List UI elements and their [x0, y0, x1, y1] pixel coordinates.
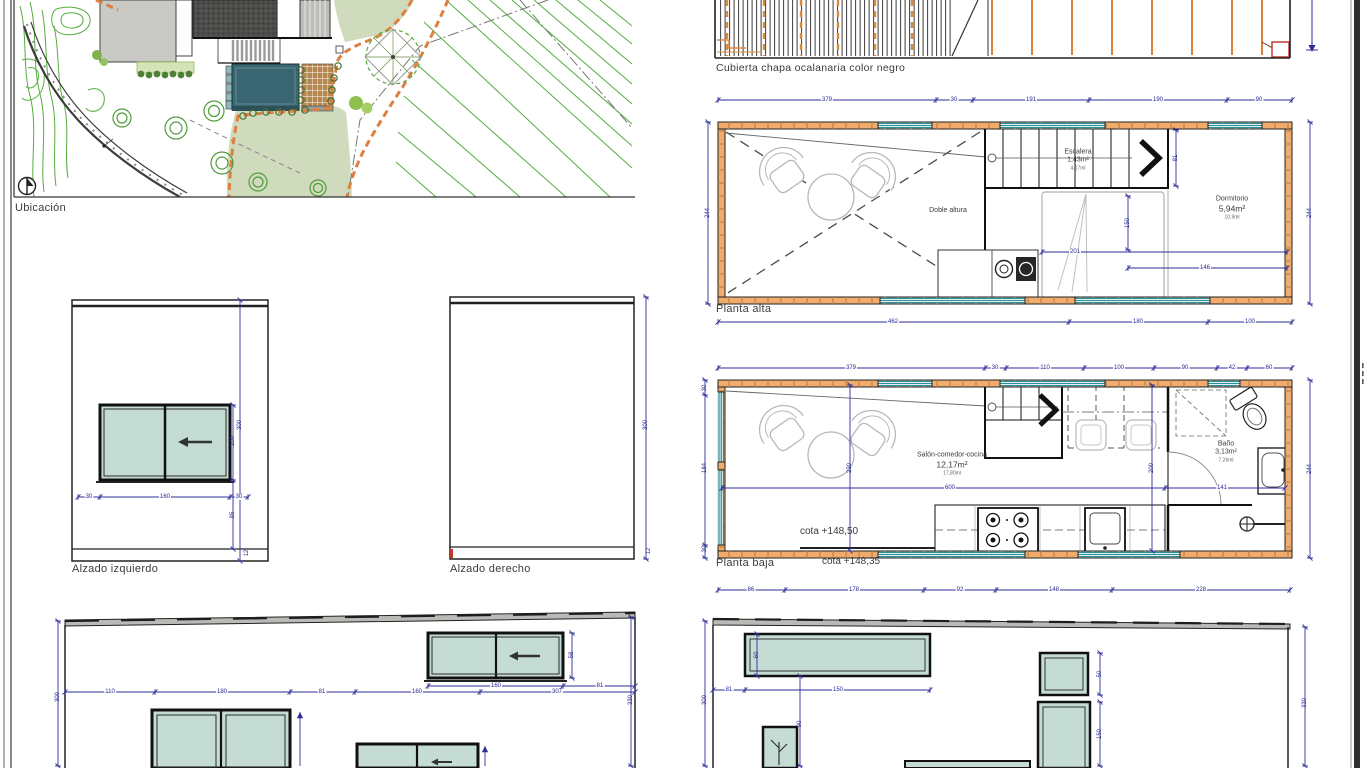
room-label-dormitorio: Dormitorio 5,94m² 10,9ml — [1216, 196, 1248, 221]
caption-planta-baja: Planta baja — [716, 557, 774, 569]
caption-planta-alta: Planta alta — [716, 303, 771, 315]
caption-ubicacion: Ubicación — [15, 202, 66, 214]
dim-label: 160 — [490, 683, 502, 689]
dim-label: 81 — [318, 689, 327, 695]
red-corner-marker — [1272, 42, 1289, 57]
round-table — [808, 174, 854, 220]
dim-label: 30 — [702, 384, 708, 393]
stair-lower — [985, 385, 1062, 458]
room-label-doble-altura: Doble altura — [929, 207, 967, 215]
dim-label: 191 — [1025, 97, 1037, 103]
dim-label: 244 — [1307, 207, 1313, 219]
dim-label: 81 — [596, 683, 605, 689]
shower-valve — [1240, 517, 1285, 531]
bed — [1042, 192, 1164, 298]
dim-label: 100 — [1113, 365, 1125, 371]
dim-label: 148 — [1048, 587, 1060, 593]
dim-label: 81 — [1173, 154, 1179, 163]
dim-label: 300 — [643, 419, 649, 431]
dim-label: 244 — [705, 207, 711, 219]
dim-label: 92 — [956, 587, 965, 593]
alzado-derecho-drawing — [450, 297, 634, 559]
kitchen — [935, 505, 1165, 553]
dim-label: 90 — [797, 720, 803, 729]
room-label-escalera: Escalera 1,43m² 4,17ml — [1064, 149, 1091, 172]
dim-label: 30 — [991, 365, 1000, 371]
dim-label: 60 — [1265, 365, 1274, 371]
roof-plan — [715, 0, 1318, 58]
kitchenette-upper — [938, 250, 1038, 298]
dim-label: 230 — [847, 462, 853, 474]
dim-label: 60 — [754, 651, 760, 660]
dim-label: 90 — [1255, 97, 1264, 103]
dim-label: 379 — [845, 365, 857, 371]
dim-label: 300 — [702, 694, 708, 706]
sink — [1085, 508, 1125, 552]
tall-window — [1038, 702, 1090, 768]
dim-label: 30 — [950, 97, 959, 103]
entry-door — [763, 727, 797, 768]
dim-label: 244 — [1307, 463, 1313, 475]
dim-label: 178 — [848, 587, 860, 593]
pool — [226, 64, 299, 111]
lawn-upper — [334, 0, 414, 42]
dim-label: 462 — [887, 319, 899, 325]
dim-label: 30 — [85, 494, 94, 500]
sheet-linework — [0, 0, 1366, 768]
dim-label: 110 — [104, 689, 116, 695]
dim-label: 300 — [55, 691, 61, 703]
dim-label: 81 — [725, 687, 734, 693]
dim-label: 300 — [237, 419, 243, 431]
roof-dim — [1306, 0, 1318, 52]
dim-label: 160 — [411, 689, 423, 695]
caption-cubierta: Cubierta chapa ocalanaria color negro — [716, 62, 905, 74]
toilet — [1229, 387, 1273, 435]
dim-label: 379 — [821, 97, 833, 103]
dim-label: 307 — [551, 689, 563, 695]
dim-label: 150 — [1097, 728, 1103, 740]
dim-label: 150 — [1125, 217, 1131, 229]
dim-label: 600 — [944, 485, 956, 491]
dim-label: 150 — [832, 687, 844, 693]
dim-label: 50 — [1097, 670, 1103, 679]
dim-label: 200 — [1149, 462, 1155, 474]
stove — [978, 508, 1038, 552]
dim-label: 228 — [1195, 587, 1207, 593]
planta-alta-plan — [718, 122, 1292, 304]
lower-door-window — [152, 710, 290, 768]
dim-label: 190 — [1152, 97, 1164, 103]
cota-interior: cota +148,50 — [800, 526, 858, 537]
architectural-drawing-sheet: Ubicación Cubierta chapa ocalanaria colo… — [0, 0, 1366, 768]
cota-exterior: cota +148,35 — [822, 556, 880, 567]
dim-label: 160 — [159, 494, 171, 500]
armchair — [750, 396, 813, 458]
dim-label: 85 — [230, 511, 236, 520]
dim-label: 180 — [216, 689, 228, 695]
dim-label: 146 — [1199, 265, 1211, 271]
dim-label: 330 — [628, 694, 634, 706]
dim-label: 90 — [1181, 365, 1190, 371]
large-tree — [365, 29, 421, 85]
dim-label: 12 — [646, 547, 652, 556]
room-label-salon: Salón-comedor-cocina 12,17m² 17,80ml — [917, 452, 987, 477]
dim-label: 30 — [235, 494, 244, 500]
sliding-window — [96, 405, 234, 482]
dim-label: 42 — [1228, 365, 1237, 371]
dim-label: 100 — [1244, 319, 1256, 325]
washbasin — [1258, 448, 1288, 494]
dim-label: 330 — [1302, 697, 1308, 709]
dim-label: 184 — [702, 462, 708, 474]
dim-label: 180 — [1132, 319, 1144, 325]
dim-label: 201 — [1069, 249, 1081, 255]
north-arrow-icon — [19, 178, 36, 195]
room-label-bano: Baño 3,13m² 7,26ml — [1215, 441, 1237, 464]
dim-label: 58 — [569, 651, 575, 660]
stools — [1076, 420, 1156, 450]
dim-label: 30 — [702, 545, 708, 554]
dim-label: 141 — [1216, 485, 1228, 491]
armchair — [750, 138, 813, 200]
caption-alzado-izquierdo: Alzado izquierdo — [72, 563, 158, 575]
small-window — [1040, 653, 1088, 695]
rafters — [992, 0, 1262, 55]
site-plan — [14, 0, 635, 197]
dim-label: 12 — [244, 549, 250, 558]
bathroom — [1168, 387, 1288, 551]
dim-label: 100 — [230, 435, 236, 447]
elevacion-frontal-drawing — [65, 612, 635, 768]
wide-window — [745, 634, 930, 676]
dim-label: 110 — [1039, 365, 1051, 371]
door-swing — [1168, 452, 1221, 505]
caption-alzado-derecho: Alzado derecho — [450, 563, 531, 575]
low-window — [905, 761, 1030, 768]
lower-window — [357, 744, 478, 768]
dim-label: 86 — [747, 587, 756, 593]
upper-sliding-window — [424, 633, 567, 681]
